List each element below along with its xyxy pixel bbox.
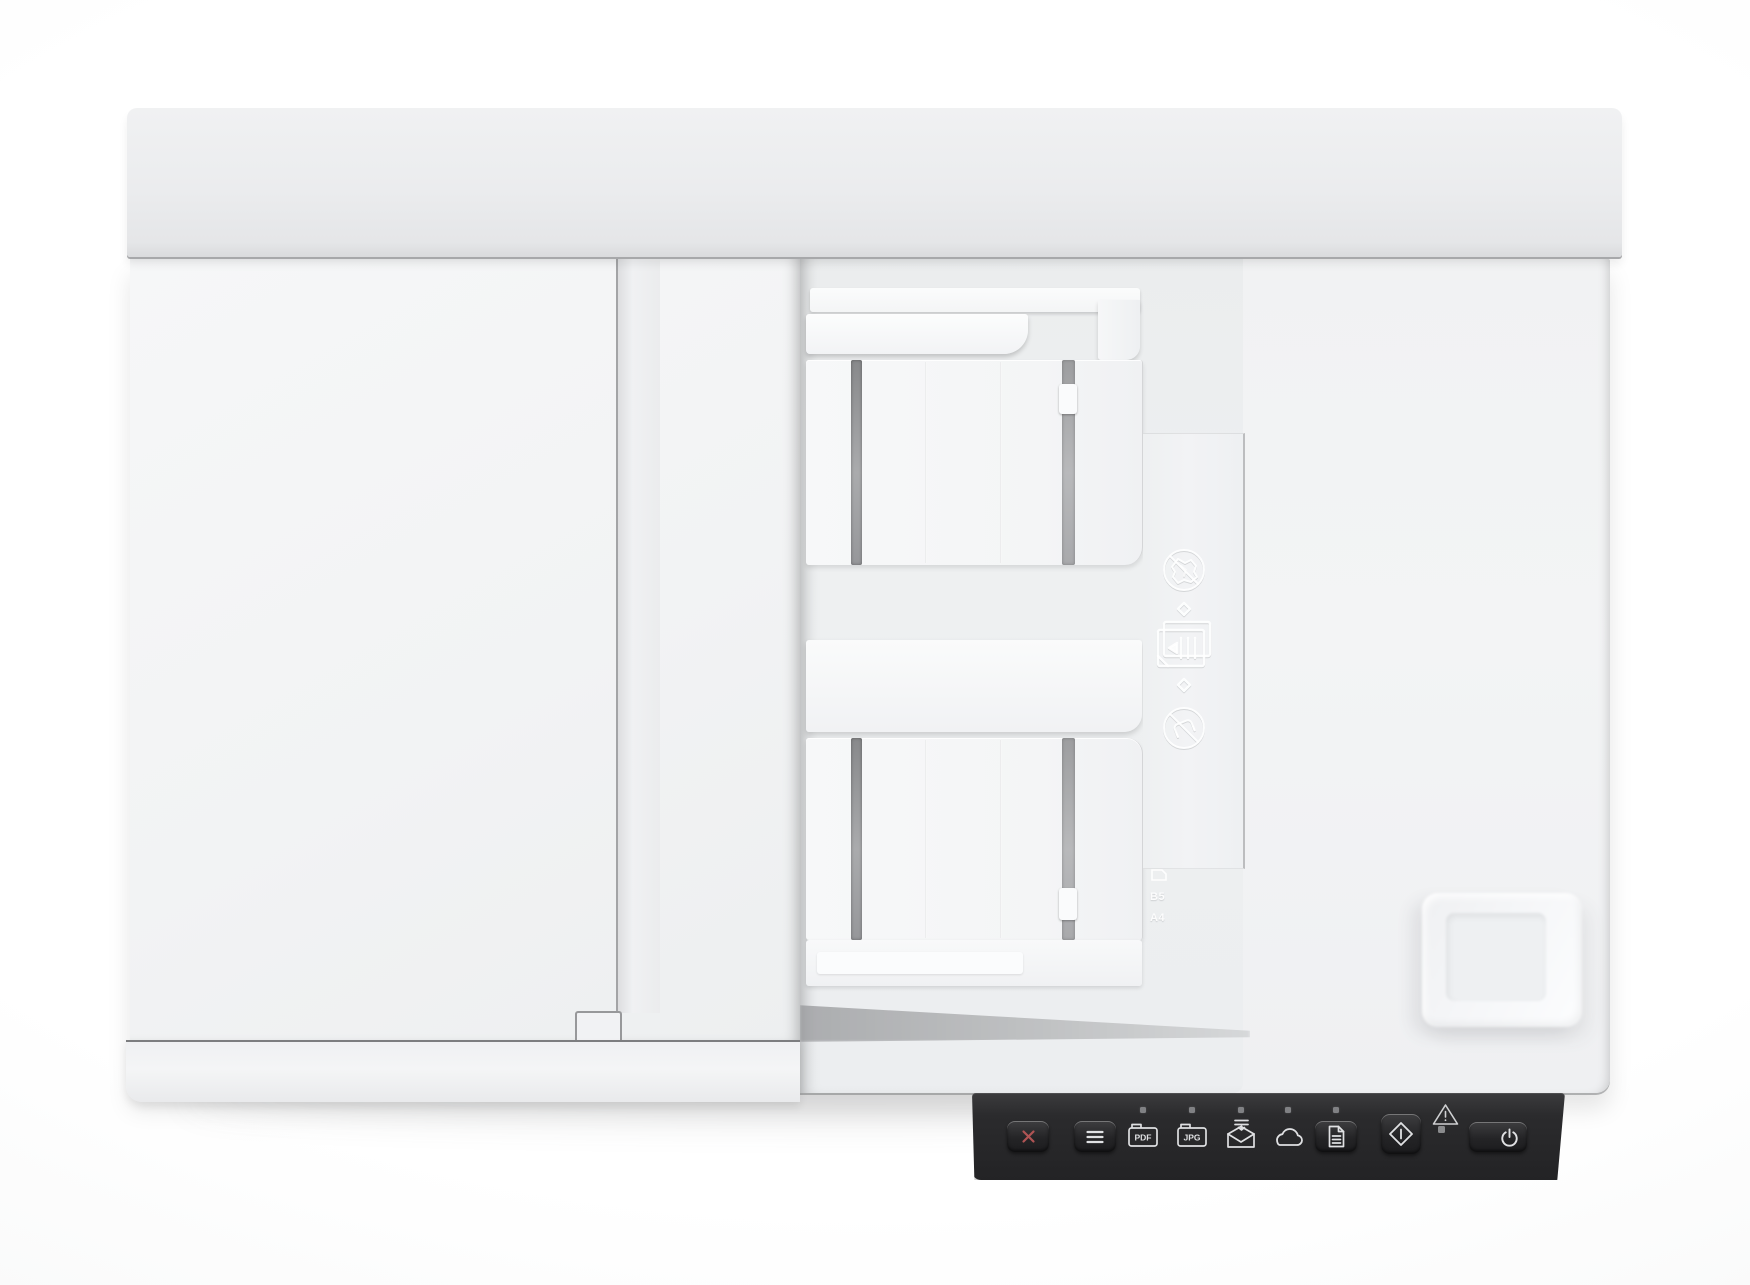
start-scan-button[interactable] xyxy=(1381,1114,1421,1154)
svg-text:PDF: PDF xyxy=(1135,1133,1152,1143)
size-mark-b5: B5 xyxy=(1150,891,1165,903)
lid-front-edge xyxy=(126,1040,800,1102)
cancel-button[interactable] xyxy=(1007,1121,1049,1152)
scan-to-jpg-button[interactable]: JPG xyxy=(1176,1119,1208,1151)
input-tray-upper-bar xyxy=(806,314,1028,354)
function-led xyxy=(1140,1107,1146,1113)
x-cancel-icon xyxy=(1021,1129,1036,1144)
menu-button[interactable] xyxy=(1074,1121,1116,1152)
email-icon xyxy=(1224,1118,1258,1150)
paper-edge-mark-icon xyxy=(1150,868,1168,882)
function-led xyxy=(1238,1107,1244,1113)
no-staples-icon xyxy=(1158,702,1210,754)
warning-triangle-icon xyxy=(1432,1103,1459,1126)
paper-stop-bar xyxy=(810,288,1140,312)
jpg-icon: JPG xyxy=(1176,1121,1208,1149)
scan-to-pdf-button[interactable]: PDF xyxy=(1127,1119,1159,1151)
tray-crease xyxy=(1000,362,1002,563)
feed-arrow-up-icon xyxy=(1178,603,1190,615)
power-button[interactable] xyxy=(1469,1122,1527,1152)
scanner-hinge-cover xyxy=(127,108,1622,257)
guide-slider[interactable] xyxy=(1059,384,1077,414)
paper-stop-bar-cap xyxy=(1098,300,1140,360)
tray-crease xyxy=(1000,740,1002,938)
function-led xyxy=(1285,1107,1291,1113)
model-label-plate-face xyxy=(1446,913,1546,1001)
guide-slot xyxy=(851,360,862,565)
paper-size-marks: B5 A4 xyxy=(1150,868,1198,924)
control-panel: PDF JPG xyxy=(972,1093,1565,1180)
tray-crease xyxy=(925,362,927,563)
svg-text:JPG: JPG xyxy=(1183,1133,1200,1143)
load-documents-icon xyxy=(1150,600,1218,696)
guide-slot xyxy=(851,738,862,940)
cloud-icon xyxy=(1271,1124,1305,1148)
document-copy-icon xyxy=(1327,1125,1346,1148)
start-diamond-icon xyxy=(1388,1121,1414,1147)
no-crumpled-paper-icon xyxy=(1158,544,1210,596)
lid-hinge-strip xyxy=(616,259,660,1013)
scanner-product-photo: B5 A4 PDF xyxy=(0,0,1750,1285)
tray-crease xyxy=(925,740,927,938)
scan-to-email-button[interactable] xyxy=(1223,1117,1259,1151)
function-led xyxy=(1333,1107,1339,1113)
model-label-plate xyxy=(1422,893,1582,1027)
warning-indicator xyxy=(1432,1103,1459,1131)
error-led xyxy=(1438,1126,1445,1133)
flatbed-lid xyxy=(130,259,800,1040)
copy-button[interactable] xyxy=(1315,1121,1357,1152)
guide-slider[interactable] xyxy=(1059,888,1077,920)
lid-latch-notch xyxy=(575,1011,622,1042)
tray-middle-bar xyxy=(806,640,1142,732)
pdf-icon: PDF xyxy=(1127,1121,1159,1149)
feed-arrow-down-icon xyxy=(1178,679,1190,691)
menu-icon xyxy=(1086,1130,1104,1144)
tray-bottom-bar-step xyxy=(817,952,1023,974)
function-led xyxy=(1189,1107,1195,1113)
scan-to-cloud-button[interactable] xyxy=(1270,1123,1306,1149)
power-icon xyxy=(1500,1128,1519,1147)
size-mark-a4: A4 xyxy=(1150,912,1165,924)
